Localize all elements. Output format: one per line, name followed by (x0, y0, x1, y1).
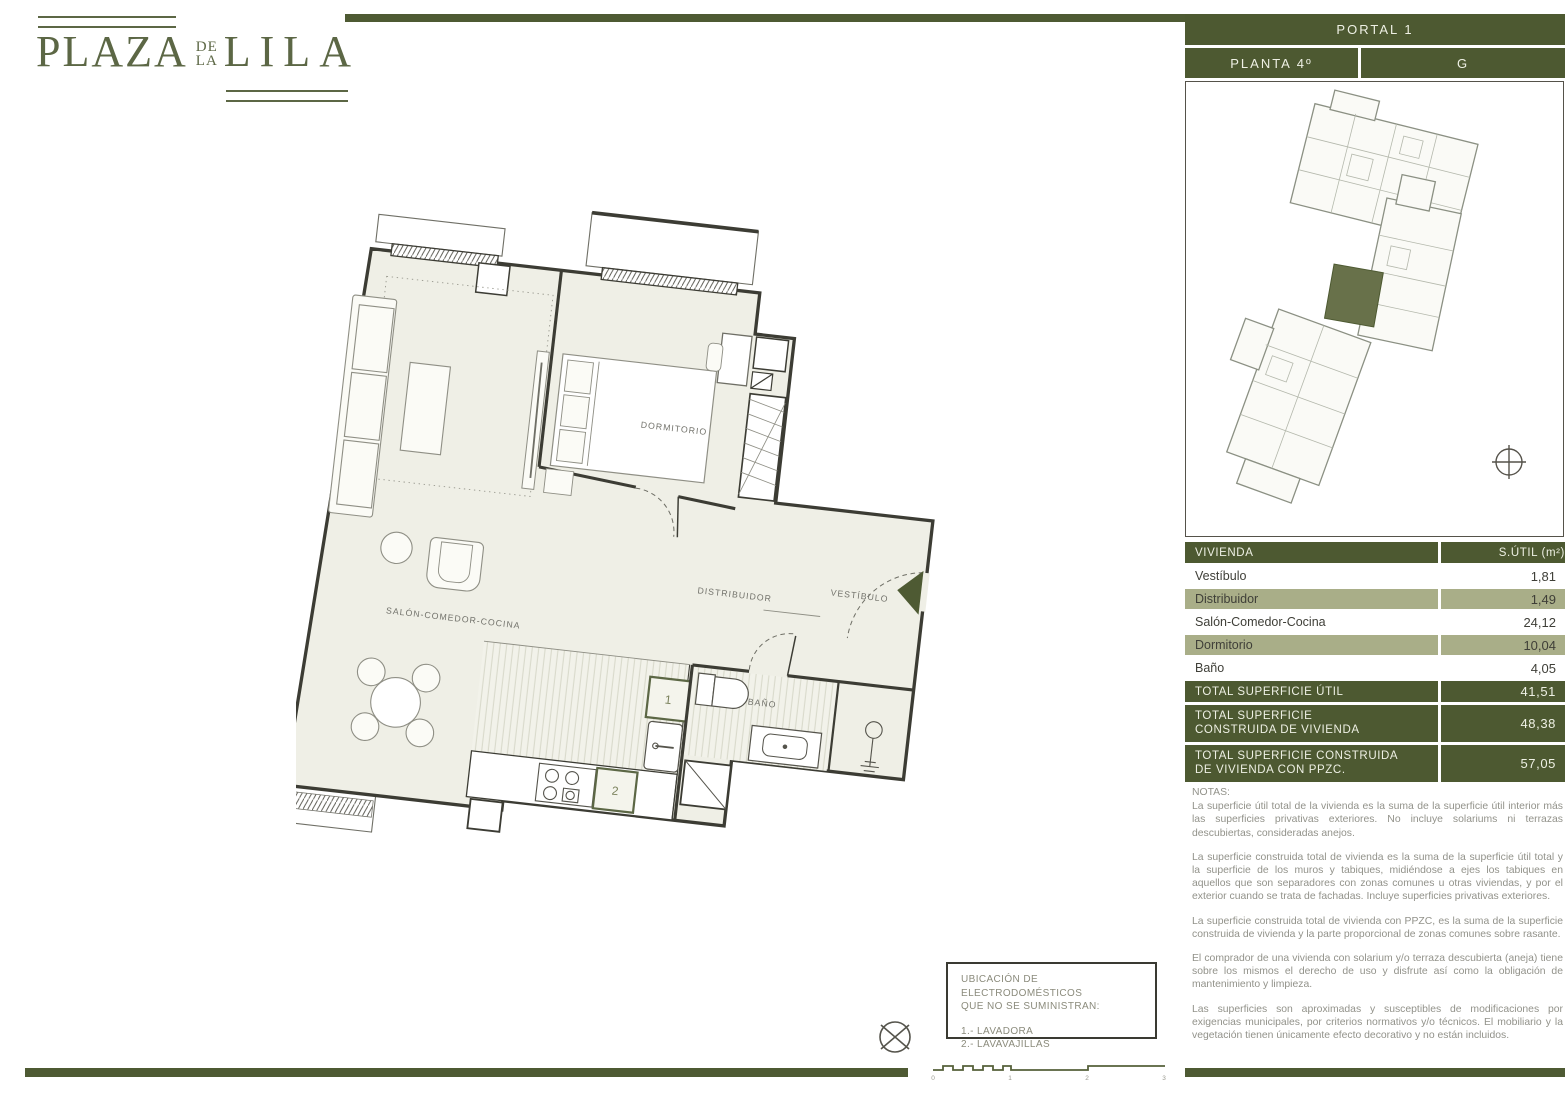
areas-table: VIVIENDA S.ÚTIL (m²) Vestíbulo1,81Distri… (1185, 542, 1565, 785)
planta-header: PLANTA 4º (1185, 48, 1358, 78)
notes-block: NOTAS: La superficie útil total de la vi… (1192, 786, 1563, 1053)
appliances-title-2: QUE NO SE SUMINISTRAN: (961, 1000, 1155, 1014)
bottom-rule-left (25, 1068, 908, 1077)
logo-de: DE (196, 40, 218, 54)
area-row-value: 10,04 (1441, 635, 1565, 655)
logo-la: LA (196, 54, 218, 68)
portal-header: PORTAL 1 (1185, 14, 1565, 45)
kitchen-sink (644, 721, 683, 772)
logo-rule-bottom (226, 90, 348, 102)
building-key-plan (1185, 81, 1564, 537)
area-row-value: 1,81 (1441, 566, 1565, 586)
scale-tick-label: 2 (1085, 1075, 1089, 1082)
logo-lila: LILA (224, 30, 360, 74)
total-row: TOTAL SUPERFICIE CONSTRUIDADE VIVIENDA C… (1185, 745, 1565, 782)
area-row-label: Distribuidor (1185, 589, 1438, 609)
graphic-scale-bar: 0123 (928, 1054, 1168, 1088)
total-row: TOTAL SUPERFICIECONSTRUIDA DE VIVIENDA48… (1185, 705, 1565, 742)
areas-table-header: VIVIENDA S.ÚTIL (m²) (1185, 542, 1565, 563)
notes-paragraph: Las superficies son aproximadas y suscep… (1192, 1003, 1563, 1043)
total-row-label: TOTAL SUPERFICIE CONSTRUIDADE VIVIENDA C… (1185, 745, 1438, 782)
area-row-label: Dormitorio (1185, 635, 1438, 655)
scale-tick-label: 1 (1008, 1075, 1012, 1082)
area-row-label: Baño (1185, 658, 1438, 678)
notes-paragraph: La superficie construida total de vivien… (1192, 851, 1563, 904)
areas-col-vivienda: VIVIENDA (1185, 542, 1438, 563)
scale-tick-label: 3 (1162, 1075, 1166, 1082)
compass-icon (1492, 445, 1526, 479)
orientation-compass-icon (874, 1016, 916, 1058)
appliance-marker-2: 2 (593, 768, 638, 813)
area-row-label: Vestíbulo (1185, 566, 1438, 586)
bottom-rule-right (1185, 1068, 1565, 1077)
bath-sink (748, 725, 821, 768)
area-row-value: 24,12 (1441, 612, 1565, 632)
highlighted-unit (1325, 264, 1384, 327)
appliance-item: 2.- LAVAVAJILLAS (961, 1038, 1155, 1052)
area-row-label: Salón-Comedor-Cocina (1185, 612, 1438, 632)
unit-letter-header: G (1361, 48, 1565, 78)
notes-paragraph: El comprador de una vivienda con solariu… (1192, 952, 1563, 992)
stove (535, 763, 596, 807)
notes-paragraph: La superficie construida total de vivien… (1192, 915, 1563, 941)
total-row-label: TOTAL SUPERFICIE ÚTIL (1185, 681, 1438, 702)
key-plan-drawing (1186, 82, 1563, 536)
floor-plan: 2 1 (296, 198, 968, 870)
area-row: Vestíbulo1,81 (1185, 566, 1565, 586)
area-row: Baño4,05 (1185, 658, 1565, 678)
appliances-title-1: UBICACIÓN DE ELECTRODOMÉSTICOS (961, 973, 1155, 1000)
total-row: TOTAL SUPERFICIE ÚTIL41,51 (1185, 681, 1565, 702)
total-row-value: 41,51 (1441, 681, 1565, 702)
area-row-value: 1,49 (1441, 589, 1565, 609)
appliances-box: UBICACIÓN DE ELECTRODOMÉSTICOS QUE NO SE… (946, 962, 1157, 1039)
total-row-value: 48,38 (1441, 705, 1565, 742)
total-row-value: 57,05 (1441, 745, 1565, 782)
area-row-value: 4,05 (1441, 658, 1565, 678)
total-row-label: TOTAL SUPERFICIECONSTRUIDA DE VIVIENDA (1185, 705, 1438, 742)
armchair (425, 537, 484, 592)
areas-col-sutil: S.ÚTIL (m²) (1441, 542, 1565, 563)
brand-logo: PLAZA DE LA LILA (36, 16, 366, 106)
area-row: Distribuidor1,49 (1185, 589, 1565, 609)
appliance-marker-1: 1 (646, 677, 691, 722)
shower-tray (680, 760, 731, 809)
appliance-item: 1.- LAVADORA (961, 1025, 1155, 1039)
logo-plaza: PLAZA (36, 30, 188, 74)
notes-title: NOTAS: (1192, 786, 1563, 799)
area-row: Dormitorio10,04 (1185, 635, 1565, 655)
area-row: Salón-Comedor-Cocina24,12 (1185, 612, 1565, 632)
top-rule-bar (345, 14, 1185, 22)
scale-tick-label: 0 (931, 1075, 935, 1082)
notes-paragraph: La superficie útil total de la vivienda … (1192, 800, 1563, 840)
